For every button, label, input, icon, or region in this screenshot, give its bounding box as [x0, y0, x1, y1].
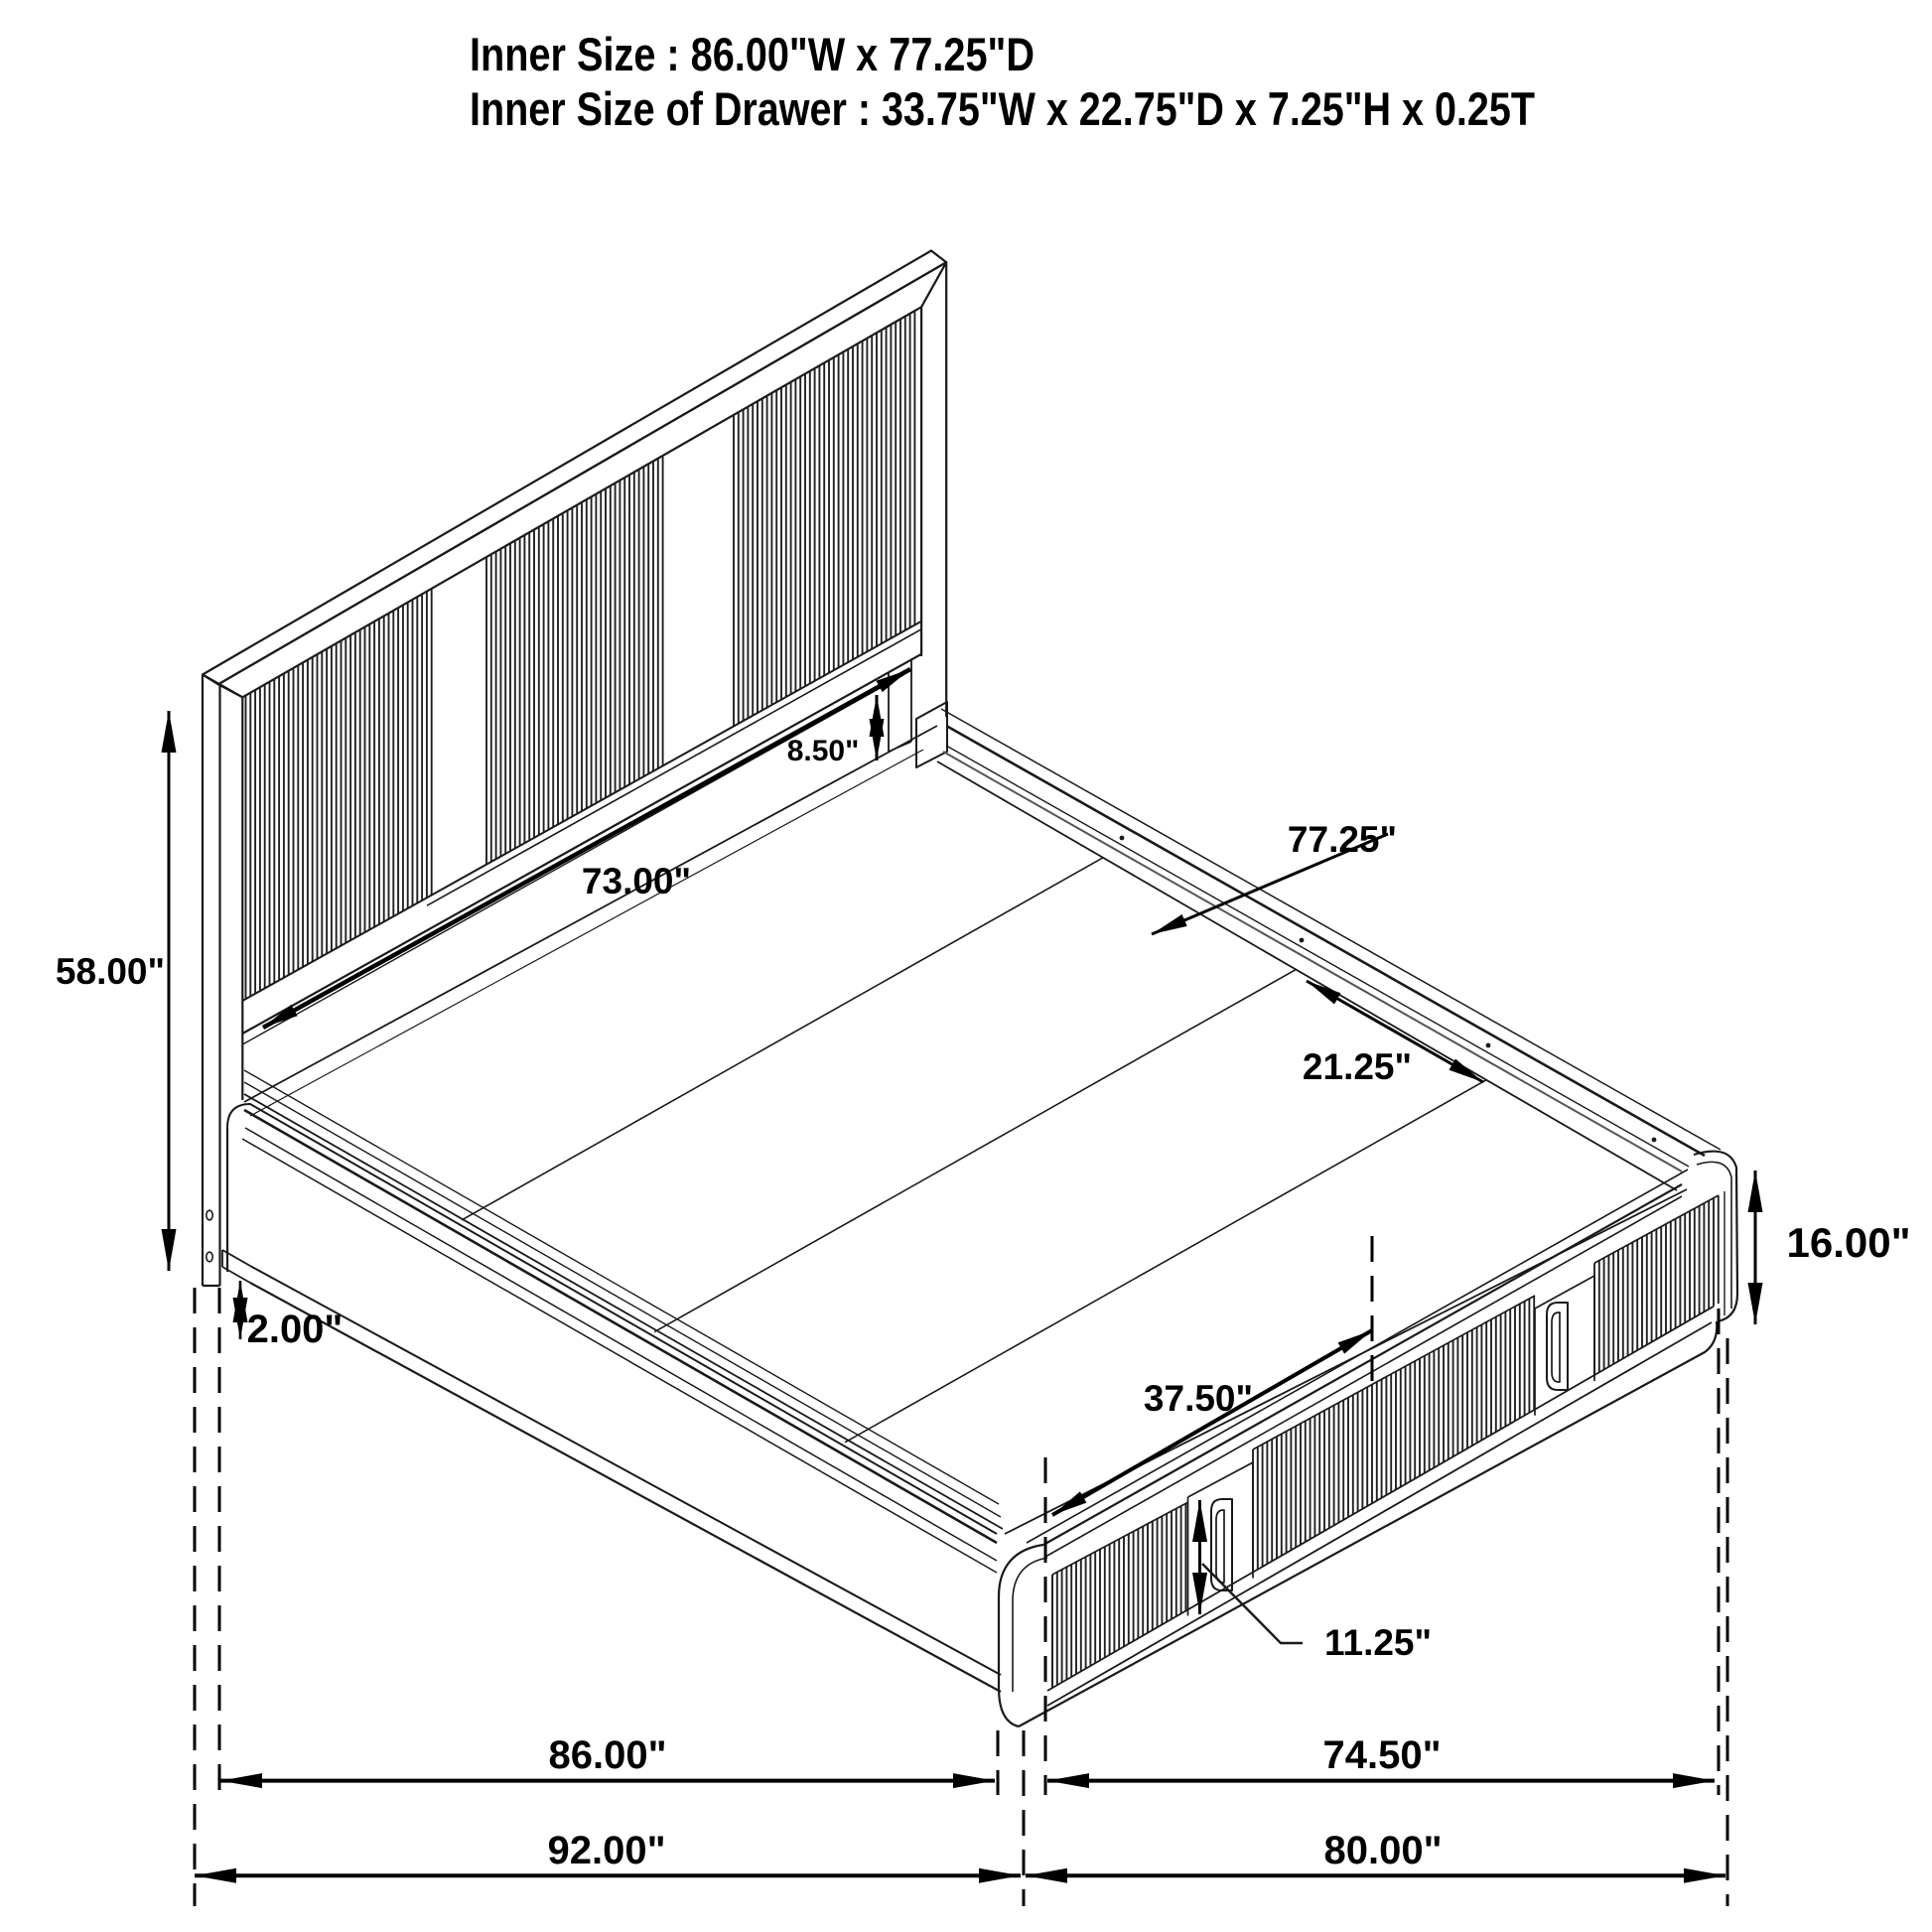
svg-text:8.50": 8.50" — [787, 735, 860, 767]
svg-text:86.00": 86.00" — [548, 1733, 666, 1777]
svg-text:74.50": 74.50" — [1322, 1733, 1441, 1777]
svg-text:58.00": 58.00" — [56, 951, 165, 992]
svg-text:92.00": 92.00" — [547, 1829, 665, 1872]
svg-text:11.25": 11.25" — [1324, 1622, 1432, 1663]
svg-text:37.50": 37.50" — [1144, 1378, 1253, 1419]
svg-text:21.25": 21.25" — [1303, 1046, 1412, 1087]
svg-text:73.00": 73.00" — [582, 861, 691, 901]
svg-text:80.00": 80.00" — [1323, 1829, 1442, 1872]
svg-text:Inner Size of Drawer : 33.75"W: Inner Size of Drawer : 33.75"W x 22.75"D… — [470, 82, 1535, 135]
svg-text:2.00": 2.00" — [247, 1308, 344, 1351]
svg-text:77.25": 77.25" — [1288, 819, 1397, 860]
svg-text:16.00": 16.00" — [1786, 1219, 1910, 1266]
svg-text:Inner Size : 86.00"W x 77.25"D: Inner Size : 86.00"W x 77.25"D — [470, 28, 1035, 80]
